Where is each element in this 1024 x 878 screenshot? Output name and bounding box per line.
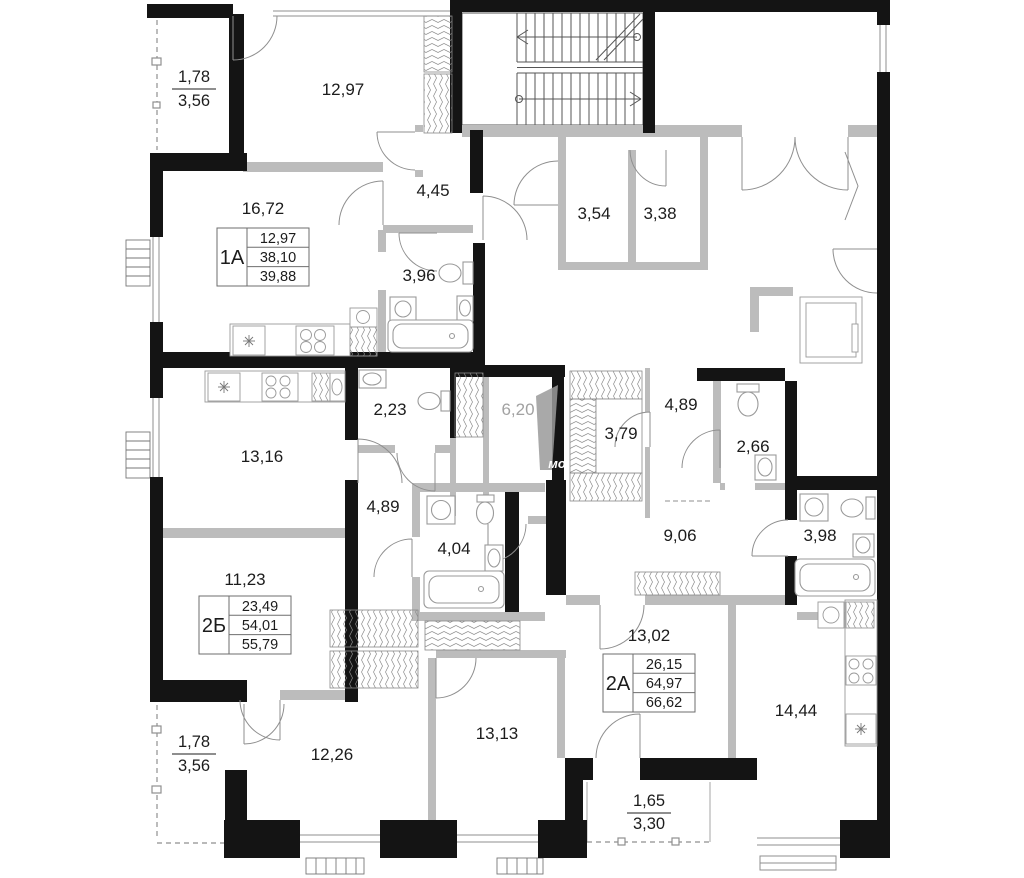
kitchen-14-44 xyxy=(818,600,877,746)
label-bath-4-04: 4,04 xyxy=(437,539,470,558)
label-storage-3-38: 3,38 xyxy=(643,204,676,223)
entrance-double-door-right xyxy=(795,137,848,190)
bathroom-3-98-fixtures xyxy=(795,494,875,596)
label-hall-6-20: 6,20 xyxy=(501,400,534,419)
apartment-1a-id: 1А xyxy=(220,247,245,269)
label-wardrobe-3-79: 3,79 xyxy=(604,424,637,443)
label-wc-2-23: 2,23 xyxy=(373,400,406,419)
label-room-12-97: 12,97 xyxy=(322,80,365,99)
label-corridor-9-06: 9,06 xyxy=(663,526,696,545)
label-hall-4-45: 4,45 xyxy=(416,181,449,200)
apartment-2b-id: 2Б xyxy=(202,615,226,637)
balcony-bl-width: 1,78 xyxy=(178,733,210,751)
hall-cabinet xyxy=(800,297,862,363)
apartment-1a-area: 38,10 xyxy=(260,250,296,266)
apartment-2b-table: 11,23 2Б 23,49 54,01 55,79 xyxy=(199,570,291,654)
drainer-icon xyxy=(312,373,330,401)
apartment-2a-living: 26,15 xyxy=(646,657,682,673)
apartment-1a-table: 16,72 1А 12,97 38,10 39,88 xyxy=(217,199,309,286)
apartment-1a-room-area: 16,72 xyxy=(242,199,285,218)
label-room-14-44: 14,44 xyxy=(775,701,818,720)
toilet-icon xyxy=(418,393,440,410)
drainer-icon xyxy=(846,602,874,628)
apartment-2a-room-area: 13,02 xyxy=(628,626,671,645)
label-room-12-26: 12,26 xyxy=(311,745,354,764)
balcony-tl-area: 3,56 xyxy=(178,92,210,110)
windows xyxy=(153,11,886,870)
watermark-text: мо xyxy=(548,456,566,471)
balcony-bottom-center-dimension: 1,65 3,30 xyxy=(627,792,671,833)
label-kitchen-13-16: 13,16 xyxy=(241,447,284,466)
balcony-tl-width: 1,78 xyxy=(178,68,210,86)
apartment-1a-total: 39,88 xyxy=(260,269,296,285)
apartment-2a-id: 2А xyxy=(606,673,631,695)
label-hall-4-89: 4,89 xyxy=(366,497,399,516)
label-corridor-4-89: 4,89 xyxy=(664,395,697,414)
label-storage-3-54: 3,54 xyxy=(577,204,610,223)
apartment-1a-living: 12,97 xyxy=(260,231,296,247)
balcony-bc-area: 3,30 xyxy=(633,815,665,833)
apartment-2a-total: 66,62 xyxy=(646,695,682,711)
apartment-2b-total: 55,79 xyxy=(242,637,278,653)
floor-plan-drawing: мо 12,97 4,45 3,96 3,54 3,38 2,23 6,20 3… xyxy=(0,0,1024,878)
wc-2-66-fixtures xyxy=(737,384,776,480)
stairwell xyxy=(462,13,643,125)
apartment-2b-room-area: 11,23 xyxy=(224,570,265,589)
apartment-2a-area: 64,97 xyxy=(646,676,682,692)
floor-plan-page: мо 12,97 4,45 3,96 3,54 3,38 2,23 6,20 3… xyxy=(0,0,1024,878)
apartment-2b-area: 54,01 xyxy=(242,618,278,634)
balcony-bl-area: 3,56 xyxy=(178,757,210,775)
label-bath-3-96: 3,96 xyxy=(402,266,435,285)
kitchen-13-16 xyxy=(205,371,345,402)
toilet-icon xyxy=(477,495,494,502)
label-room-13-13: 13,13 xyxy=(476,724,519,743)
toilet-icon xyxy=(841,499,863,517)
toilet-icon xyxy=(737,384,759,392)
fixtures xyxy=(205,262,877,746)
label-wc-2-66: 2,66 xyxy=(736,437,769,456)
balcony-bottom-left-dimension: 1,78 3,56 xyxy=(172,733,216,775)
label-bath-3-98: 3,98 xyxy=(803,526,836,545)
balcony-bc-width: 1,65 xyxy=(633,792,665,810)
entrance-double-door-left xyxy=(742,137,795,190)
balcony-top-left-dimension: 1,78 3,56 xyxy=(172,68,216,110)
drainer-icon xyxy=(350,327,377,356)
toilet-icon xyxy=(439,264,461,282)
apartment-2b-living: 23,49 xyxy=(242,599,278,615)
apartment-2a-table: 13,02 2А 26,15 64,97 66,62 xyxy=(603,626,695,712)
kitchen-1a xyxy=(230,308,377,356)
